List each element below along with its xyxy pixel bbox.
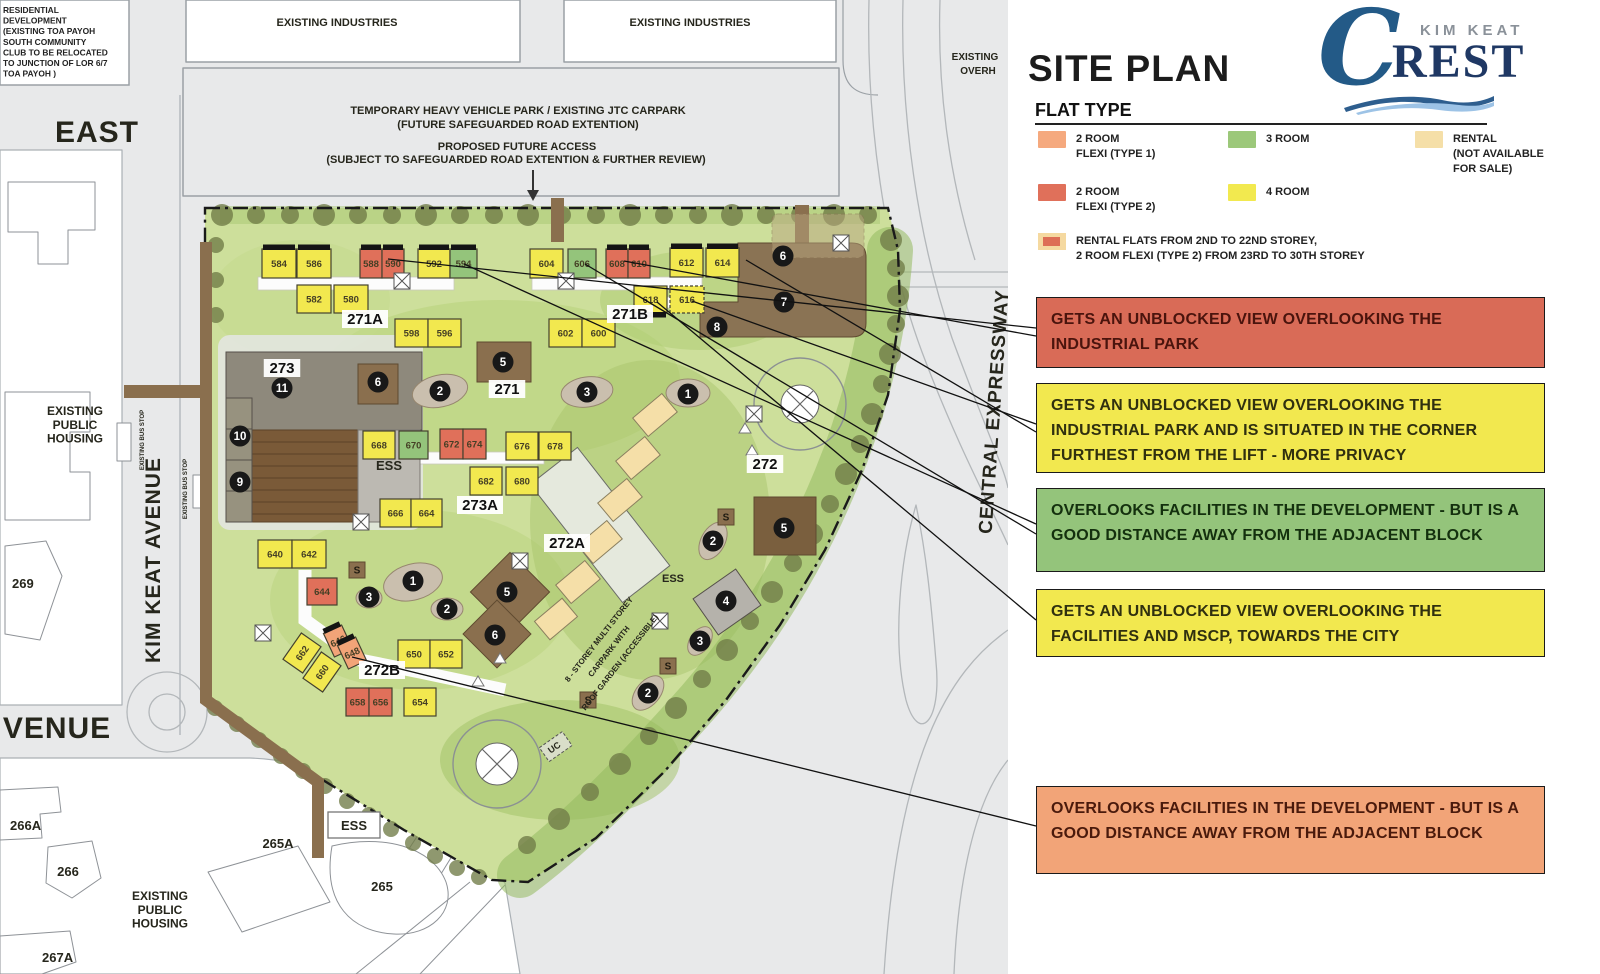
relocation-note: RESIDENTIALDEVELOPMENT(EXISTING TOA PAYO…	[0, 0, 129, 85]
rental-flats-swatch-inner	[1043, 237, 1060, 246]
map-label: ESS	[662, 573, 684, 585]
callout-note-4: GETS AN UNBLOCKED VIEW OVERLOOKING THE F…	[1036, 589, 1545, 657]
facility-number-6: 6	[773, 246, 794, 267]
callout-note-1: GETS AN UNBLOCKED VIEW OVERLOOKING THE I…	[1036, 297, 1545, 368]
building-unit-number: 642	[301, 550, 317, 561]
4-room-swatch	[1228, 184, 1256, 201]
building-unit-number: 652	[438, 650, 454, 661]
facility-number-9: 9	[230, 472, 251, 493]
facility-number-label: 1	[685, 389, 692, 401]
building-unit-number: 616	[679, 295, 695, 306]
facility-number-label: 1	[410, 576, 417, 588]
facility-number-label: 2	[710, 536, 716, 548]
building-unit-number: 592	[426, 259, 442, 270]
tree-icon	[518, 836, 536, 854]
building-unit-610: 610	[628, 245, 650, 279]
building-unit-number: 608	[609, 259, 625, 270]
map-label: EXISTING	[952, 52, 999, 63]
tree-icon	[880, 229, 902, 251]
relocation-note-line: SOUTH COMMUNITY	[3, 37, 87, 47]
tree-icon	[835, 463, 857, 485]
shelter-marker-label: S	[354, 566, 361, 577]
facility-number-label: 5	[781, 523, 788, 535]
tree-icon	[887, 259, 905, 277]
facility-number-3: 3	[577, 382, 598, 403]
tree-icon	[383, 821, 399, 837]
page-title: SITE PLAN	[1028, 48, 1230, 90]
legend-item-4-room: 4 ROOM	[1228, 184, 1309, 201]
rental-swatch	[1415, 131, 1443, 148]
building-unit-640: 640	[258, 540, 292, 568]
facility-number-label: 9	[237, 477, 243, 489]
facility-number-6: 6	[368, 372, 389, 393]
block-label-271A: 271A	[342, 310, 388, 328]
building-unit-number: 668	[371, 441, 387, 452]
building-unit-678: 678	[539, 432, 571, 460]
facility-number-2: 2	[703, 531, 724, 552]
facility-number-label: 8	[714, 322, 721, 334]
tree-icon	[609, 753, 631, 775]
facility-number-label: 5	[500, 357, 507, 369]
shelter-marker: S	[660, 658, 676, 674]
tree-icon	[665, 697, 687, 719]
facility-number-label: 3	[366, 592, 372, 604]
building-unit-number: 604	[539, 259, 556, 270]
kim-keat-crest-logo: C KIM KEAT REST	[1308, 0, 1598, 120]
facility-number-5: 5	[497, 582, 518, 603]
map-label: 265A	[262, 836, 294, 851]
service-box-icon	[746, 406, 762, 422]
building-unit-658: 658	[346, 688, 369, 716]
building-unit-594: 594	[450, 245, 477, 279]
map-label: ESS	[376, 458, 402, 473]
building-unit-682: 682	[470, 467, 502, 495]
map-label: 266A	[10, 818, 42, 833]
building-unit-number: 582	[306, 295, 322, 306]
block-label-text: 271	[494, 381, 519, 398]
facility-number-label: 2	[437, 386, 443, 398]
building-unit-580: 580	[334, 285, 368, 313]
legend-rule	[1035, 123, 1487, 125]
tree-icon	[693, 670, 711, 688]
building-unit-602: 602	[549, 319, 582, 347]
facility-number-8: 8	[707, 317, 728, 338]
rental-label: RENTAL (NOT AVAILABLE FOR SALE)	[1453, 131, 1544, 177]
shelter-marker: S	[718, 509, 734, 525]
tree-icon	[761, 581, 783, 603]
relocation-note-line: TO JUNCTION OF LOR 6/7	[3, 58, 108, 68]
block-label-text: 273	[269, 360, 294, 377]
info-panel: SITE PLAN C KIM KEAT REST FLAT TYPE 2 RO…	[1012, 0, 1600, 974]
building-unit-number: 600	[591, 329, 607, 340]
building-unit-642: 642	[292, 540, 326, 568]
callout-note-2: GETS AN UNBLOCKED VIEW OVERLOOKING THE I…	[1036, 383, 1545, 473]
service-box-icon	[512, 553, 528, 569]
block-label-text: 273A	[462, 497, 498, 514]
relocation-note-line: (EXISTING TOA PAYOH	[3, 26, 95, 36]
map-label: EXISTINGPUBLICHOUSING	[132, 889, 188, 931]
building-unit-number: 590	[385, 259, 401, 270]
service-box-icon	[833, 235, 849, 251]
map-label: EXISTING INDUSTRIES	[629, 17, 750, 29]
map-label: 265	[371, 879, 393, 894]
facility-number-10: 10	[230, 426, 251, 447]
facility-number-label: 2	[444, 604, 450, 616]
relocation-note-line: DEVELOPMENT	[3, 16, 68, 26]
block-label-273: 273	[264, 359, 301, 377]
service-box-icon	[558, 273, 574, 289]
facility-number-label: 5	[504, 587, 511, 599]
building-unit-number: 596	[437, 329, 453, 340]
building-unit-number: 678	[547, 442, 563, 453]
map-label: 266	[57, 864, 79, 879]
building-unit-number: 584	[271, 259, 288, 270]
block-label-272: 272	[747, 455, 784, 473]
map-label: EXISTING BUS STOP	[183, 459, 189, 519]
building-unit-number: 614	[715, 258, 732, 269]
tree-icon	[581, 783, 599, 801]
building-unit-596: 596	[428, 319, 461, 347]
building-unit-612: 612	[670, 244, 703, 278]
legend-heading: FLAT TYPE	[1035, 100, 1132, 121]
legend-item-2-room-flexi-type-2: 2 ROOM FLEXI (TYPE 2)	[1038, 184, 1155, 215]
legend-item-rental: RENTAL (NOT AVAILABLE FOR SALE)	[1415, 131, 1544, 177]
map-label: 269	[12, 576, 34, 591]
building-unit-676: 676	[506, 432, 538, 460]
2-room-flexi-type-2-label: 2 ROOM FLEXI (TYPE 2)	[1076, 184, 1155, 215]
facility-number-label: 3	[584, 387, 590, 399]
map-label: EAST	[55, 116, 139, 149]
tree-icon	[784, 554, 802, 572]
building-unit-number: 602	[558, 329, 574, 340]
building-unit-588: 588	[360, 245, 382, 279]
building-unit-674: 674	[463, 429, 486, 459]
facility-number-2: 2	[437, 599, 458, 620]
building-unit-number: 682	[478, 477, 494, 488]
relocation-note-line: TOA PAYOH )	[3, 69, 56, 79]
facility-number-1: 1	[403, 571, 424, 592]
logo-wave-icon	[1344, 92, 1494, 116]
building-unit-number: 644	[314, 587, 331, 598]
site-plan-map: 5845865885905925946046066086106126145825…	[0, 0, 1008, 974]
map-label: 267A	[42, 950, 74, 965]
block-label-text: 271A	[347, 311, 383, 328]
building-unit-number: 606	[574, 259, 590, 270]
tree-icon	[716, 639, 738, 661]
2-room-flexi-type-1-swatch	[1038, 131, 1066, 148]
building-unit-number: 664	[419, 509, 436, 520]
map-label: EXISTINGPUBLICHOUSING	[47, 404, 103, 446]
building-unit-number: 670	[406, 441, 422, 452]
shelter-marker-label: S	[665, 662, 672, 673]
2-room-flexi-type-2-swatch	[1038, 184, 1066, 201]
facility-number-3: 3	[359, 587, 380, 608]
building-unit-number: 676	[514, 442, 530, 453]
building-unit-number: 612	[679, 258, 695, 269]
block-label-text: 272A	[549, 535, 585, 552]
building-unit-number: 640	[267, 550, 283, 561]
tree-icon	[873, 375, 891, 393]
facility-number-4: 4	[716, 591, 737, 612]
block-label-text: 271B	[612, 306, 648, 323]
facility-number-7: 7	[774, 292, 795, 313]
map-label: KIM KEAT AVENUE	[142, 457, 165, 663]
block-label-271: 271	[489, 380, 526, 398]
facility-number-label: 6	[492, 630, 498, 642]
facility-number-2: 2	[430, 381, 451, 402]
building-unit-600: 600	[582, 319, 615, 347]
map-label: EXISTING BUS STOP	[140, 410, 146, 470]
map-label: TEMPORARY HEAVY VEHICLE PARK / EXISTING …	[350, 105, 685, 117]
facility-number-11: 11	[272, 378, 293, 399]
building-unit-672: 672	[440, 429, 463, 459]
map-label: (SUBJECT TO SAFEGUARDED ROAD EXTENTION &…	[326, 154, 706, 166]
map-label: ESS	[341, 818, 367, 833]
building-unit-652: 652	[430, 640, 462, 668]
map-label: OVERH	[960, 66, 996, 77]
building-unit-614: 614	[706, 244, 739, 278]
block-label-272A: 272A	[544, 534, 590, 552]
block-label-text: 272	[752, 456, 777, 473]
building-unit-number: 650	[406, 650, 422, 661]
site-plan-page: 5845865885905925946046066086106126145825…	[0, 0, 1600, 974]
tree-icon	[427, 848, 443, 864]
facility-number-label: 3	[697, 636, 703, 648]
building-unit-608: 608	[606, 245, 628, 279]
facility-number-label: 4	[723, 596, 730, 608]
block-label-273A: 273A	[457, 496, 503, 514]
facility-number-label: 6	[780, 251, 786, 263]
map-label: EXISTING INDUSTRIES	[276, 17, 397, 29]
tree-icon	[851, 435, 869, 453]
relocation-note-line: RESIDENTIAL	[3, 5, 59, 15]
block-label-272B: 272B	[359, 661, 405, 679]
rental-flats-note-label: RENTAL FLATS FROM 2ND TO 22ND STOREY, 2 …	[1076, 233, 1365, 264]
tree-icon	[879, 343, 901, 365]
building-unit-586: 586	[297, 245, 331, 279]
block-label-text: 272B	[364, 662, 400, 679]
facility-number-3: 3	[690, 631, 711, 652]
relocation-note-line: CLUB TO BE RELOCATED	[3, 47, 108, 57]
building-unit-number: 674	[467, 440, 484, 451]
tree-icon	[640, 727, 658, 745]
shelter-marker-label: S	[723, 513, 730, 524]
building-unit-664: 664	[411, 499, 442, 527]
facility-number-label: 7	[781, 297, 787, 309]
map-label: VENUE	[3, 712, 111, 745]
facility-number-2: 2	[638, 683, 659, 704]
building-unit-number: 598	[404, 329, 420, 340]
building-unit-number: 580	[343, 295, 359, 306]
callout-note-5: OVERLOOKS FACILITIES IN THE DEVELOPMENT …	[1036, 786, 1545, 874]
service-box-icon	[394, 273, 410, 289]
building-unit-654: 654	[404, 688, 436, 716]
block-label-271B: 271B	[607, 305, 653, 323]
service-box-icon	[353, 514, 369, 530]
facility-number-5: 5	[493, 352, 514, 373]
building-unit-number: 666	[388, 509, 404, 520]
tree-icon	[887, 285, 909, 307]
building-unit-666: 666	[380, 499, 411, 527]
building-unit-number: 586	[306, 259, 322, 270]
building-unit-592: 592	[418, 245, 450, 279]
service-box-icon	[255, 625, 271, 641]
legend-item-3-room: 3 ROOM	[1228, 131, 1309, 148]
building-unit-number: 610	[631, 259, 647, 270]
building-unit-number: 680	[514, 477, 530, 488]
facility-number-label: 10	[234, 431, 247, 443]
tree-icon	[405, 835, 421, 851]
logo-brand-rest: REST	[1392, 34, 1525, 89]
facility-number-6: 6	[485, 625, 506, 646]
building-unit-number: 588	[363, 259, 379, 270]
2-room-flexi-type-1-label: 2 ROOM FLEXI (TYPE 1)	[1076, 131, 1155, 162]
building-unit-656: 656	[369, 688, 392, 716]
tree-icon	[548, 808, 570, 830]
map-label: PROPOSED FUTURE ACCESS	[438, 141, 597, 153]
map-label: (FUTURE SAFEGUARDED ROAD EXTENTION)	[397, 119, 639, 131]
facility-number-5: 5	[774, 518, 795, 539]
facility-number-label: 6	[375, 377, 381, 389]
building-unit-616: 616	[670, 286, 704, 313]
building-unit-number: 654	[412, 698, 429, 709]
building-unit-644: 644	[307, 578, 337, 605]
facility-number-label: 2	[645, 688, 651, 700]
building-unit-number: 594	[456, 259, 473, 270]
building-unit-670: 670	[399, 431, 428, 459]
facility-number-label: 11	[276, 383, 289, 395]
legend-item-2-room-flexi-type-1: 2 ROOM FLEXI (TYPE 1)	[1038, 131, 1155, 162]
tree-icon	[821, 495, 839, 513]
3-room-label: 3 ROOM	[1266, 131, 1309, 148]
building-unit-number: 618	[643, 295, 659, 306]
callout-note-3: OVERLOOKS FACILITIES IN THE DEVELOPMENT …	[1036, 488, 1545, 572]
legend-item-rental-flats-note: RENTAL FLATS FROM 2ND TO 22ND STOREY, 2 …	[1038, 233, 1365, 264]
3-room-swatch	[1228, 131, 1256, 148]
4-room-label: 4 ROOM	[1266, 184, 1309, 201]
building-unit-number: 656	[373, 698, 389, 709]
building-unit-582: 582	[297, 285, 331, 313]
building-unit-584: 584	[262, 245, 296, 279]
building-unit-598: 598	[395, 319, 428, 347]
building-unit-number: 672	[444, 440, 460, 451]
building-unit-680: 680	[506, 467, 538, 495]
facility-number-1: 1	[678, 384, 699, 405]
rental-flats-swatch	[1038, 233, 1066, 250]
building-unit-number: 658	[350, 698, 366, 709]
shelter-marker: S	[349, 562, 365, 578]
building-unit-668: 668	[363, 431, 395, 459]
